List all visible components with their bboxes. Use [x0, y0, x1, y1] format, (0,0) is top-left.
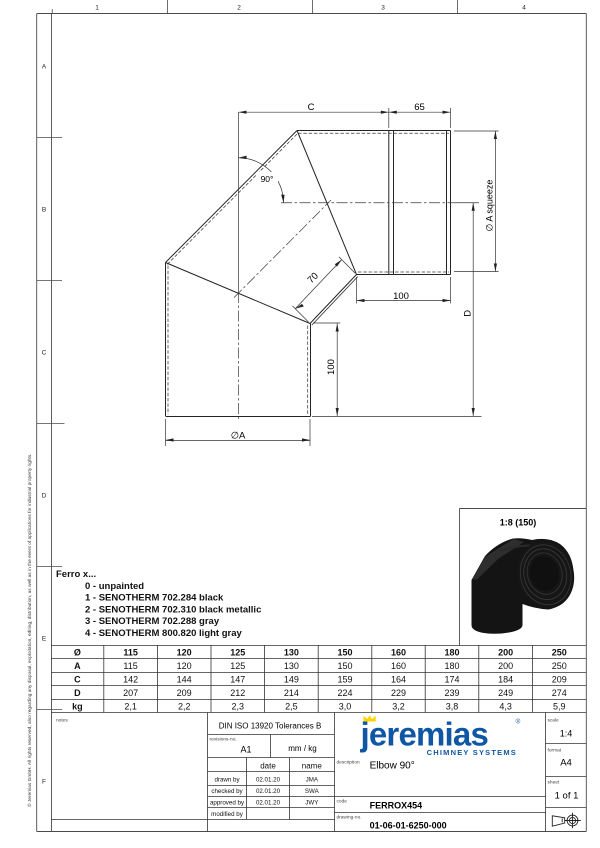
svg-text:200: 200 [498, 648, 513, 658]
svg-text:149: 149 [284, 675, 299, 685]
svg-text:01-06-01-6250-000: 01-06-01-6250-000 [370, 821, 447, 831]
svg-text:239: 239 [444, 688, 459, 698]
svg-text:164: 164 [391, 675, 406, 685]
svg-text:4: 4 [522, 5, 526, 12]
svg-text:3,0: 3,0 [339, 702, 352, 712]
svg-text:®: ® [516, 718, 521, 726]
svg-text:checked by: checked by [211, 788, 243, 795]
svg-text:Elbow 90°: Elbow 90° [370, 761, 415, 772]
svg-text:0 - unpainted: 0 - unpainted [85, 581, 144, 592]
svg-text:2,5: 2,5 [285, 702, 298, 712]
svg-text:150: 150 [337, 661, 352, 671]
svg-text:144: 144 [177, 675, 192, 685]
svg-text:SWA: SWA [305, 788, 320, 795]
svg-text:120: 120 [177, 648, 192, 658]
svg-text:revisions-no.: revisions-no. [210, 737, 237, 743]
svg-text:249: 249 [498, 688, 513, 698]
svg-text:F: F [42, 778, 46, 785]
svg-text:02.01.20: 02.01.20 [256, 788, 281, 795]
svg-text:2,2: 2,2 [178, 702, 191, 712]
svg-text:drawn by: drawn by [214, 777, 240, 784]
svg-text:3 - SENOTHERM 702.288 gray: 3 - SENOTHERM 702.288 gray [85, 616, 220, 627]
svg-text:JMA: JMA [306, 777, 319, 784]
svg-text:D: D [74, 688, 81, 698]
svg-text:mm / kg: mm / kg [288, 744, 316, 753]
svg-text:65: 65 [414, 102, 425, 113]
svg-text:code: code [337, 799, 348, 805]
svg-text:description: description [337, 760, 361, 766]
svg-text:174: 174 [444, 675, 459, 685]
svg-text:∅A: ∅A [231, 431, 246, 442]
svg-text:180: 180 [444, 648, 459, 658]
svg-text:5,9: 5,9 [553, 702, 566, 712]
svg-text:250: 250 [552, 648, 567, 658]
svg-text:A: A [42, 63, 47, 70]
svg-text:160: 160 [391, 648, 406, 658]
svg-text:3: 3 [381, 5, 385, 12]
svg-text:A4: A4 [560, 758, 572, 769]
svg-text:274: 274 [552, 688, 567, 698]
svg-text:Ferro x...: Ferro x... [56, 569, 96, 580]
svg-text:2,1: 2,1 [124, 702, 137, 712]
svg-text:90°: 90° [261, 174, 274, 184]
svg-text:scale: scale [548, 718, 560, 724]
svg-text:02.01.20: 02.01.20 [256, 777, 281, 784]
svg-text:150: 150 [337, 648, 352, 658]
svg-text:DIN ISO 13920 Tolerances B: DIN ISO 13920 Tolerances B [219, 722, 322, 731]
svg-text:B: B [42, 206, 46, 213]
svg-text:sheet: sheet [548, 780, 560, 786]
svg-text:name: name [302, 762, 323, 771]
svg-text:209: 209 [177, 688, 192, 698]
svg-text:drawing-no.: drawing-no. [337, 815, 362, 821]
svg-text:C: C [74, 675, 81, 685]
svg-text:142: 142 [123, 675, 138, 685]
svg-text:159: 159 [337, 675, 352, 685]
svg-text:180: 180 [444, 661, 459, 671]
svg-text:E: E [42, 635, 47, 642]
svg-text:∅ A squeeze: ∅ A squeeze [485, 180, 495, 232]
svg-text:CHIMNEY SYSTEMS: CHIMNEY SYSTEMS [427, 748, 517, 757]
svg-text:100: 100 [326, 359, 337, 375]
svg-text:207: 207 [123, 688, 138, 698]
svg-text:160: 160 [391, 661, 406, 671]
svg-text:1 of 1: 1 of 1 [555, 791, 579, 802]
svg-text:2 - SENOTHERM 702.310 black me: 2 - SENOTHERM 702.310 black metallic [85, 604, 261, 615]
svg-text:229: 229 [391, 688, 406, 698]
svg-text:120: 120 [177, 661, 192, 671]
svg-text:FERROX454: FERROX454 [370, 801, 423, 811]
svg-text:209: 209 [552, 675, 567, 685]
svg-text:184: 184 [498, 675, 513, 685]
svg-text:130: 130 [284, 661, 299, 671]
svg-text:jeremias: jeremias [360, 716, 489, 753]
svg-text:3,2: 3,2 [392, 702, 405, 712]
svg-text:4 - SENOTHERM 800.820 light gr: 4 - SENOTHERM 800.820 light gray [85, 628, 243, 639]
svg-text:200: 200 [498, 661, 513, 671]
svg-text:115: 115 [123, 648, 138, 658]
svg-text:224: 224 [337, 688, 352, 698]
svg-text:kg: kg [72, 702, 83, 712]
svg-text:115: 115 [123, 661, 137, 671]
svg-text:© Jeremias GmbH. All rights re: © Jeremias GmbH. All rights reserved, al… [26, 453, 33, 807]
svg-text:D: D [42, 492, 47, 499]
svg-text:1:8 (150): 1:8 (150) [500, 518, 537, 528]
svg-text:approved by: approved by [210, 800, 245, 807]
svg-text:212: 212 [230, 688, 245, 698]
svg-text:130: 130 [284, 648, 299, 658]
svg-text:C: C [308, 102, 315, 113]
svg-text:D: D [462, 310, 473, 317]
svg-text:modified by: modified by [211, 811, 244, 818]
svg-text:format: format [548, 748, 562, 754]
svg-text:125: 125 [230, 661, 245, 671]
svg-text:C: C [42, 349, 47, 356]
svg-text:1 - SENOTHERM 702.284 black: 1 - SENOTHERM 702.284 black [85, 593, 224, 604]
svg-text:date: date [260, 762, 276, 771]
svg-text:2: 2 [237, 5, 241, 12]
svg-text:Ø: Ø [74, 648, 81, 658]
svg-text:A1: A1 [240, 745, 251, 755]
svg-text:JWY: JWY [305, 800, 318, 807]
svg-text:02.01.20: 02.01.20 [256, 800, 281, 807]
svg-text:250: 250 [552, 661, 567, 671]
svg-text:1:4: 1:4 [560, 729, 573, 739]
svg-text:147: 147 [230, 675, 245, 685]
svg-text:A: A [74, 661, 81, 671]
svg-text:214: 214 [284, 688, 299, 698]
svg-text:3,8: 3,8 [446, 702, 459, 712]
svg-text:1: 1 [95, 5, 99, 12]
svg-text:125: 125 [230, 648, 245, 658]
svg-text:4,3: 4,3 [499, 702, 512, 712]
svg-text:100: 100 [393, 291, 409, 302]
svg-text:2,3: 2,3 [232, 702, 245, 712]
svg-text:notes: notes [56, 718, 68, 724]
